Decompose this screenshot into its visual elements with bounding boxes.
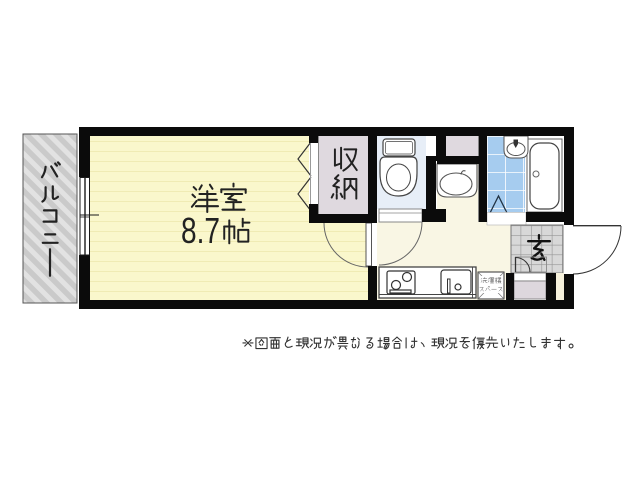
svg-text:8.7: 8.7 — [181, 210, 220, 251]
